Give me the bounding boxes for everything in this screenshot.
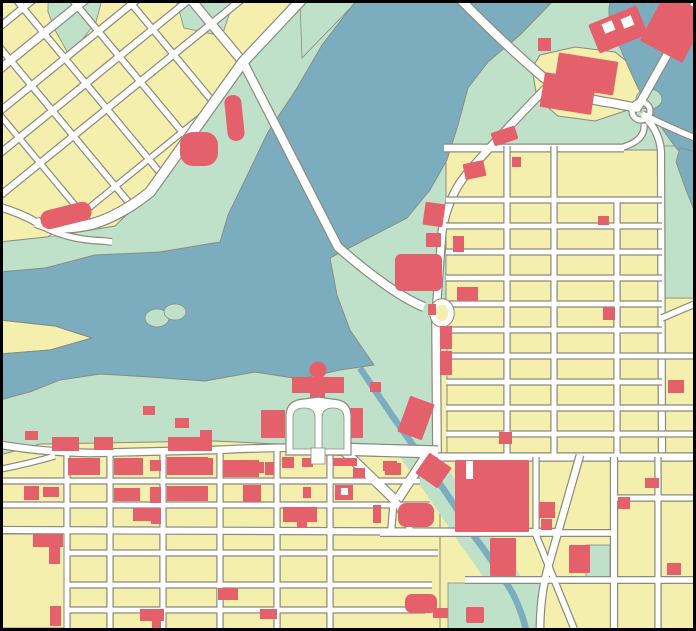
building <box>422 202 445 228</box>
building <box>603 307 615 320</box>
street <box>436 314 437 454</box>
building <box>140 609 164 621</box>
building <box>133 508 151 521</box>
building <box>33 534 63 547</box>
street <box>391 497 394 533</box>
building <box>43 487 59 497</box>
building <box>49 546 60 564</box>
building <box>398 503 434 527</box>
building <box>150 460 161 471</box>
building <box>114 458 143 475</box>
building <box>490 538 516 576</box>
building <box>433 608 448 618</box>
building <box>168 437 212 451</box>
horseshoe-left-arch <box>293 408 315 449</box>
building <box>167 486 208 501</box>
building <box>180 132 218 166</box>
building <box>538 38 551 51</box>
building <box>457 287 478 301</box>
building <box>333 458 357 466</box>
building <box>200 458 213 475</box>
building <box>370 382 381 392</box>
building <box>150 487 161 503</box>
building <box>261 410 285 438</box>
building-courtyard <box>341 488 348 495</box>
map-viewport[interactable] <box>0 0 696 631</box>
building <box>499 432 512 444</box>
horseshoe-right-arch <box>322 408 344 449</box>
building <box>25 431 38 440</box>
building <box>24 486 39 500</box>
building <box>440 326 452 349</box>
horseshoe-drive <box>286 397 351 464</box>
building <box>218 588 238 600</box>
legislative-dome <box>310 362 327 379</box>
building <box>143 406 155 415</box>
building <box>405 594 437 613</box>
building <box>541 519 552 530</box>
map-canvas[interactable] <box>0 0 696 631</box>
building <box>440 351 452 375</box>
building <box>667 563 681 575</box>
building <box>383 461 397 471</box>
legislative-main-bar <box>292 377 344 393</box>
building <box>395 254 442 291</box>
building <box>426 233 441 247</box>
building <box>265 462 274 475</box>
building <box>243 485 261 502</box>
building <box>668 380 684 393</box>
building <box>428 304 436 315</box>
building <box>598 216 609 225</box>
building <box>539 502 555 518</box>
building <box>94 437 113 450</box>
building <box>453 236 464 252</box>
building <box>52 437 79 451</box>
building <box>645 478 659 488</box>
building <box>303 487 311 498</box>
building-courtyard <box>466 461 473 479</box>
building <box>618 497 630 509</box>
building <box>297 519 307 528</box>
building <box>258 462 264 473</box>
building <box>260 609 277 619</box>
building <box>569 545 590 573</box>
building <box>512 157 521 167</box>
building <box>282 457 294 468</box>
horseshoe-south-stem <box>311 448 325 464</box>
building <box>353 468 365 478</box>
building <box>175 418 189 428</box>
building <box>50 606 61 626</box>
building <box>223 460 259 477</box>
building <box>152 620 161 628</box>
building <box>114 488 140 501</box>
building <box>466 607 484 623</box>
building <box>373 505 381 523</box>
island <box>164 304 186 320</box>
building <box>68 458 100 475</box>
building <box>151 508 161 524</box>
